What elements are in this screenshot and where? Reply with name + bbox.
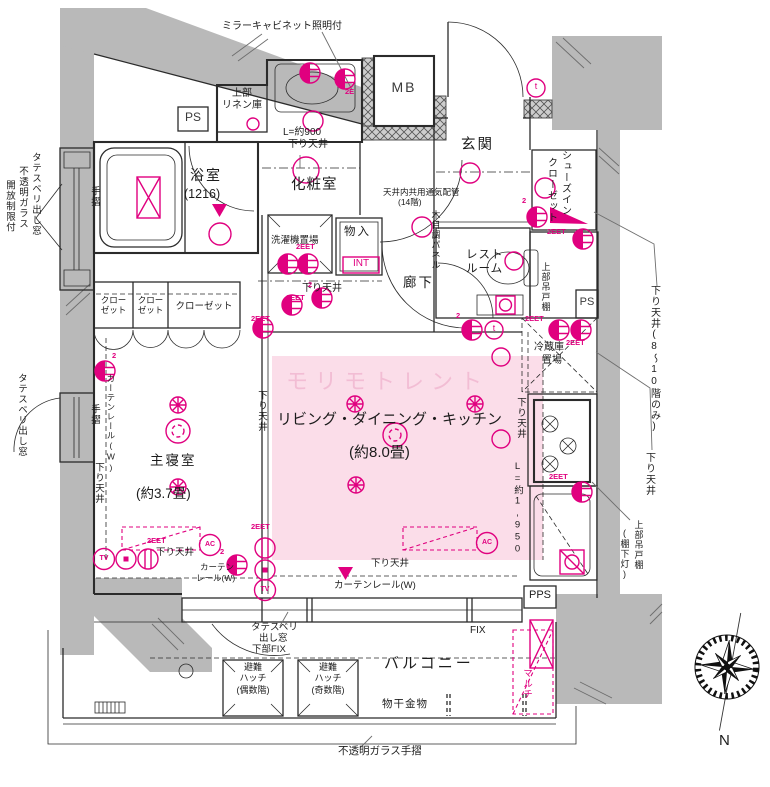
label-hatch-even-1: 避難 — [223, 663, 283, 672]
label-vent-floor: (14階) — [398, 198, 422, 207]
label-bathroom-size: (1216) — [184, 188, 220, 201]
label-ldk-size: (約8.0畳) — [349, 445, 410, 461]
label-closet2-1: クロー — [133, 296, 168, 305]
label-sic-2: クローゼット — [545, 157, 556, 223]
label-l900-ceiling: 下り天井 — [288, 140, 328, 151]
label-ac-bed: AC — [203, 541, 217, 548]
label-window-top-limit: 開放制限付 — [4, 180, 14, 233]
label-2-sic: 2 — [522, 197, 526, 205]
label-down-ceiling-8-10: 下り天井(8〜10階のみ) — [648, 285, 659, 433]
label-vent-pipe: 天井内共用通気配管 — [383, 188, 460, 197]
label-sic-1: シューズイン — [559, 150, 570, 216]
label-bedroom-size: (約3.7畳) — [136, 487, 191, 501]
label-down-ceiling-bed-left: 下り天井 — [93, 462, 103, 504]
label-mb: MB — [374, 80, 434, 95]
label-restroom-1: レスト — [466, 249, 504, 261]
label-down-ceiling-ldk: 下り天井 — [371, 559, 409, 569]
label-down-ceiling-ldk-right: 下り天井 — [515, 397, 525, 439]
label-t-entrance: t — [530, 82, 542, 91]
label-corridor: 廊下 — [403, 276, 434, 290]
label-l900: L=約900 — [283, 128, 321, 139]
label-balcony: バルコニー — [384, 656, 474, 672]
label-ps-right: PS — [576, 297, 598, 309]
label-2eet-bed-top: 2EET — [251, 315, 270, 323]
label-multi: マルチ — [521, 668, 531, 700]
label-closet1-1: クロー — [94, 296, 133, 305]
label-2-restroom: 2 — [456, 312, 460, 320]
label-ac-ldk: AC — [480, 539, 494, 546]
label-2e: 2E — [345, 88, 354, 96]
label-2eet-fridge-l: 2EET — [525, 315, 544, 323]
label-curtain-rail-bed: カーテンレール(W) — [106, 374, 115, 474]
label-closet2-2: ゼット — [133, 306, 168, 315]
label-upper-hanging-restroom: 上部吊戸棚 — [540, 262, 549, 312]
label-2-bed-left: 2 — [112, 352, 116, 360]
label-linen-1: 上部 — [217, 89, 267, 100]
label-pps: PPS — [524, 590, 556, 602]
label-l1950: L=約1,950 — [512, 461, 522, 556]
label-fridge-1: 冷蔵庫 — [534, 343, 564, 354]
label-2eet-fridge-r: 2EET — [566, 339, 585, 347]
label-window-top-name: タテスベリ出し窓 — [30, 152, 40, 236]
label-curtain-rail-w: カーテンレール(W) — [334, 581, 416, 591]
hatched-walls — [362, 58, 552, 140]
label-wood-panel: 木目調パネル — [430, 210, 439, 270]
label-down-ceiling-bed: 下り天井 — [156, 548, 194, 558]
label-restroom-2: ルーム — [466, 263, 503, 275]
label-ps-top: PS — [178, 111, 208, 124]
label-entrance: 玄関 — [461, 138, 494, 153]
label-2-partition: 2 — [220, 548, 224, 556]
label-tate-2: 出し窓 — [259, 634, 288, 644]
label-hatch-even-3: (偶数階) — [223, 686, 283, 695]
label-2eet-bed-bottom: 2EET — [147, 537, 166, 545]
label-ldk: リビング・ダイニング・キッチン — [277, 412, 502, 428]
label-opaque-rail: 不透明ガラス手摺 — [338, 746, 422, 757]
label-hatch-odd-2: ハッチ — [298, 674, 358, 683]
label-window-bottom-name: タテスベリ出し窓 — [16, 373, 26, 457]
label-t-restroom: t — [488, 324, 500, 333]
label-down-ceiling-ldk-left: 下り天井 — [256, 390, 266, 432]
label-window-top-glass: 不透明ガラス — [17, 166, 27, 229]
label-closet1-2: ゼット — [94, 306, 133, 315]
label-powder-room: 化粧室 — [291, 178, 338, 193]
label-tate-1: タテスベリ — [251, 623, 298, 633]
label-linen-2: リネン庫 — [217, 101, 267, 112]
floor-plan: モリモトレント ミラーキャビネット照明付 上部 リネン庫 PS MB L=約90… — [0, 0, 770, 787]
label-bathroom: 浴室 — [190, 168, 222, 183]
label-curtain-2: レール(W) — [196, 574, 235, 583]
label-down-ceiling-right: 下り天井 — [643, 452, 654, 496]
label-storage-int: INT — [343, 259, 379, 270]
label-tv-partition: TV — [258, 586, 272, 593]
label-hatch-odd-1: 避難 — [298, 663, 358, 672]
label-tv-bed: TV — [97, 555, 111, 562]
label-tate-3: 下部FIX — [252, 645, 286, 655]
label-2-hall: 2 — [308, 281, 312, 289]
compass-rose — [690, 609, 764, 733]
label-2eet-hall: 2EET — [286, 294, 305, 302]
label-closet3: クローゼット — [168, 302, 240, 312]
label-fix: FIX — [470, 626, 486, 637]
label-drying: 物干金物 — [382, 699, 428, 710]
label-bedroom: 主寝室 — [150, 454, 197, 468]
label-2eet-laundry: 2EET — [296, 243, 315, 251]
label-2eet-partition: 2EET — [251, 523, 270, 531]
label-curtain-1: カーテン — [200, 563, 234, 572]
label-hatch-odd-3: (奇数階) — [298, 686, 358, 695]
label-2eet-kitchen: 2EET — [549, 473, 568, 481]
label-handrail-top: 手摺 — [89, 186, 99, 207]
label-handrail-bottom: 手摺 — [89, 404, 99, 425]
label-mirror-cabinet: ミラーキャビネット照明付 — [222, 22, 342, 33]
label-storage: 物入 — [344, 226, 371, 238]
watermark: モリモトレント — [286, 370, 489, 393]
label-fridge-2: 置場 — [542, 356, 562, 367]
label-2eet-entrance: 2EET — [547, 228, 566, 236]
label-upper-hanging-kitchen: 上部吊戸棚 — [633, 520, 642, 570]
label-hatch-even-2: ハッチ — [223, 674, 283, 683]
label-north: N — [719, 733, 730, 749]
label-upper-hanging-light: (棚下灯) — [619, 528, 628, 580]
